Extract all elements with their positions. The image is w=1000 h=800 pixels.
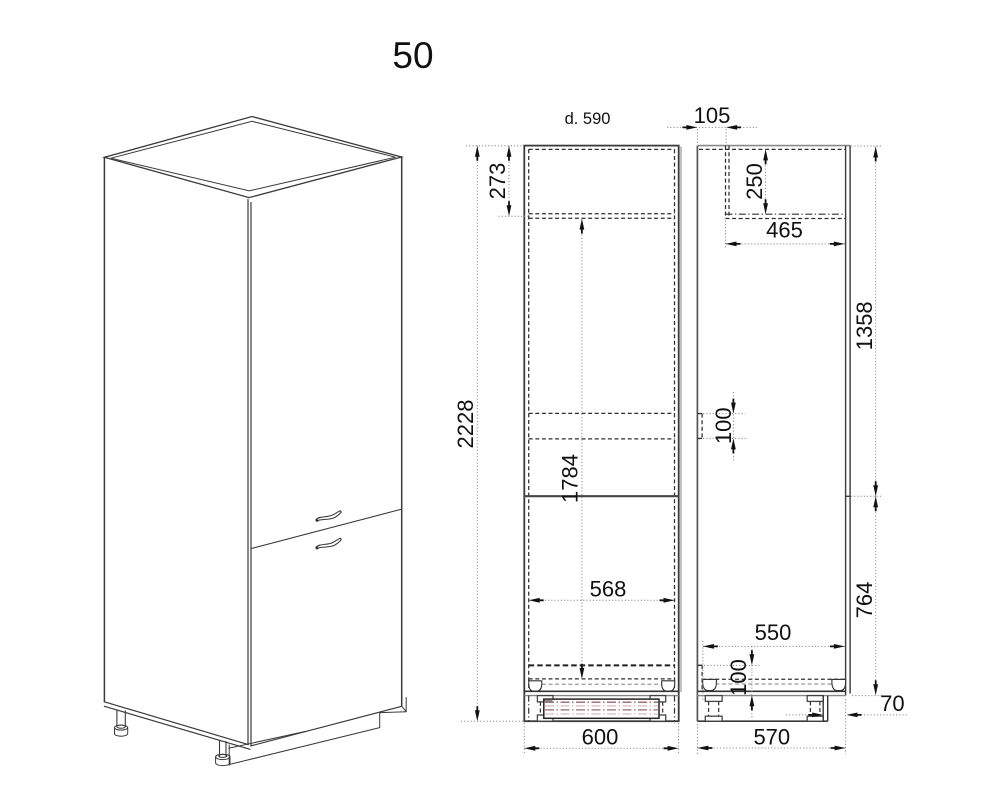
svg-text:70: 70 — [880, 691, 904, 716]
svg-text:764: 764 — [852, 582, 877, 619]
svg-text:600: 600 — [582, 724, 619, 749]
svg-text:2228: 2228 — [453, 400, 478, 449]
svg-text:50: 50 — [392, 35, 433, 76]
svg-text:1784: 1784 — [558, 454, 583, 503]
svg-text:100: 100 — [726, 659, 751, 696]
svg-text:d. 590: d. 590 — [565, 110, 611, 128]
svg-text:465: 465 — [766, 218, 803, 243]
svg-text:550: 550 — [755, 620, 792, 645]
svg-text:105: 105 — [694, 103, 731, 128]
svg-text:1358: 1358 — [852, 301, 877, 350]
svg-text:100: 100 — [711, 407, 736, 444]
svg-text:568: 568 — [590, 577, 627, 602]
svg-text:570: 570 — [753, 725, 790, 750]
svg-text:273: 273 — [485, 163, 510, 200]
svg-text:250: 250 — [742, 163, 767, 200]
